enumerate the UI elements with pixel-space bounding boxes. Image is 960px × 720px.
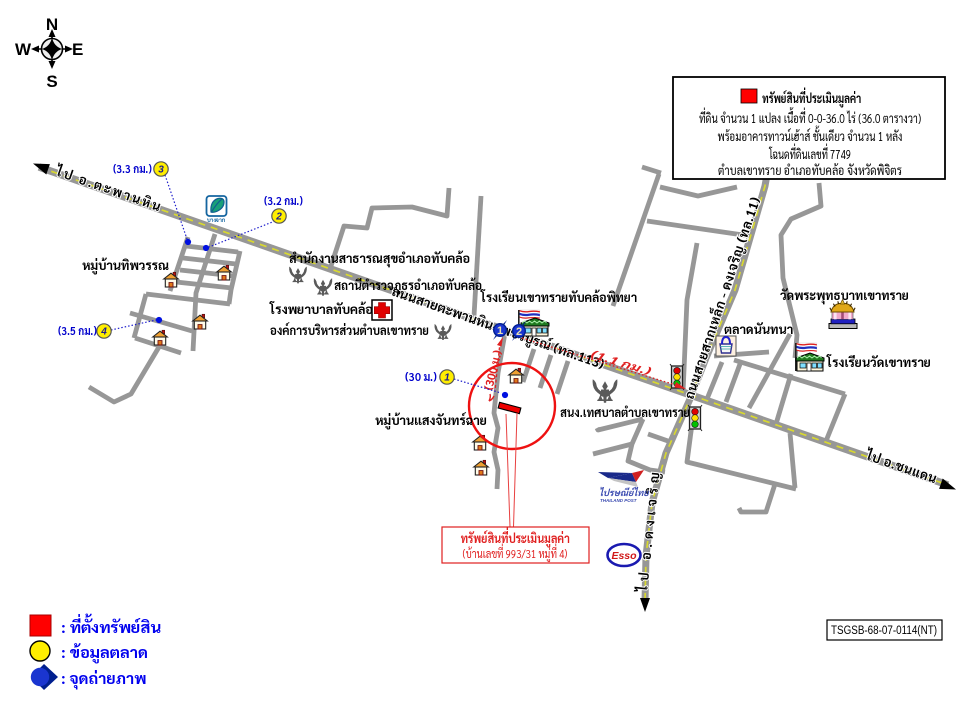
- svg-text:พร้อมอาคารทาวน์เฮ้าส์ ชั้นเดีย: พร้อมอาคารทาวน์เฮ้าส์ ชั้นเดียว จำนวน 1 …: [718, 124, 903, 144]
- svg-text:(30 ม.): (30 ม.): [405, 368, 437, 384]
- svg-text:ตำบลเขาทราย อำเภอทับคล้อ จัง: ตำบลเขาทราย อำเภอทับคล้อ จังหวัดพิจิตร: [718, 162, 902, 178]
- svg-text:N: N: [46, 15, 58, 34]
- svg-text:หมู่บ้านทิพวรรณ: หมู่บ้านทิพวรรณ: [82, 256, 169, 276]
- svg-text:สถานีตำรวจภูธรอำเภอทับคล้อ: สถานีตำรวจภูธรอำเภอทับคล้อ: [334, 276, 482, 296]
- svg-text:: ที่ตั้งทรัพย์สิน: : ที่ตั้งทรัพย์สิน: [61, 612, 162, 637]
- svg-text:: จุดถ่ายภาพ: : จุดถ่ายภาพ: [61, 667, 146, 690]
- svg-text:TSGSB-68-07-0114(NT): TSGSB-68-07-0114(NT): [831, 625, 937, 637]
- svg-text:ตลาดนันทนา: ตลาดนันทนา: [724, 321, 793, 338]
- svg-text:สนง.เทศบาลตำบลเขาทราย: สนง.เทศบาลตำบลเขาทราย: [560, 404, 690, 421]
- svg-text:(3.3 กม.): (3.3 กม.): [113, 160, 152, 176]
- svg-text:2: 2: [516, 326, 522, 338]
- svg-text:องค์การบริหารส่วนตำบลเขาทราย: องค์การบริหารส่วนตำบลเขาทราย: [270, 321, 429, 339]
- svg-text:S: S: [46, 72, 57, 91]
- svg-text:W: W: [15, 40, 32, 59]
- svg-text:โรงเรียนวัดเขาทราย: โรงเรียนวัดเขาทราย: [826, 353, 931, 371]
- svg-text:(บ้านเลขที่ 993/31 หมู่ที่ 4): (บ้านเลขที่ 993/31 หมู่ที่ 4): [463, 543, 568, 562]
- svg-text:4: 4: [100, 327, 107, 338]
- svg-text:: ข้อมูลตลาด: : ข้อมูลตลาด: [61, 641, 148, 664]
- svg-text:บางจาก: บางจาก: [207, 217, 225, 224]
- svg-text:โรงพยาบาลทับคล้อ: โรงพยาบาลทับคล้อ: [269, 300, 373, 318]
- svg-text:หมู่บ้านแสงจันทร์ฉาย: หมู่บ้านแสงจันทร์ฉาย: [375, 411, 487, 431]
- svg-text:โรงเรียนเขาทรายทับคล้อพิทยา: โรงเรียนเขาทรายทับคล้อพิทยา: [480, 288, 637, 306]
- svg-text:E: E: [72, 40, 83, 59]
- svg-text:1: 1: [497, 325, 503, 337]
- svg-text:THAILAND POST: THAILAND POST: [600, 498, 638, 503]
- svg-text:1: 1: [444, 373, 450, 384]
- svg-text:(3.2 กม.): (3.2 กม.): [264, 192, 303, 208]
- svg-text:2: 2: [275, 212, 282, 223]
- svg-text:Esso: Esso: [611, 550, 637, 562]
- svg-text:วัดพระพุทธบาทเขาทราย: วัดพระพุทธบาทเขาทราย: [780, 287, 909, 305]
- svg-text:ทรัพย์สินที่ประเมินมูลค่า: ทรัพย์สินที่ประเมินมูลค่า: [762, 86, 861, 109]
- svg-text:3: 3: [158, 165, 164, 176]
- svg-text:สำนักงานสาธารณสุขอำเภอทับคล้อ: สำนักงานสาธารณสุขอำเภอทับคล้อ: [289, 249, 470, 268]
- svg-text:ทรัพย์สินที่ประเมินมูลค่า: ทรัพย์สินที่ประเมินมูลค่า: [461, 526, 571, 547]
- svg-text:(3.5 กม.): (3.5 กม.): [58, 322, 97, 338]
